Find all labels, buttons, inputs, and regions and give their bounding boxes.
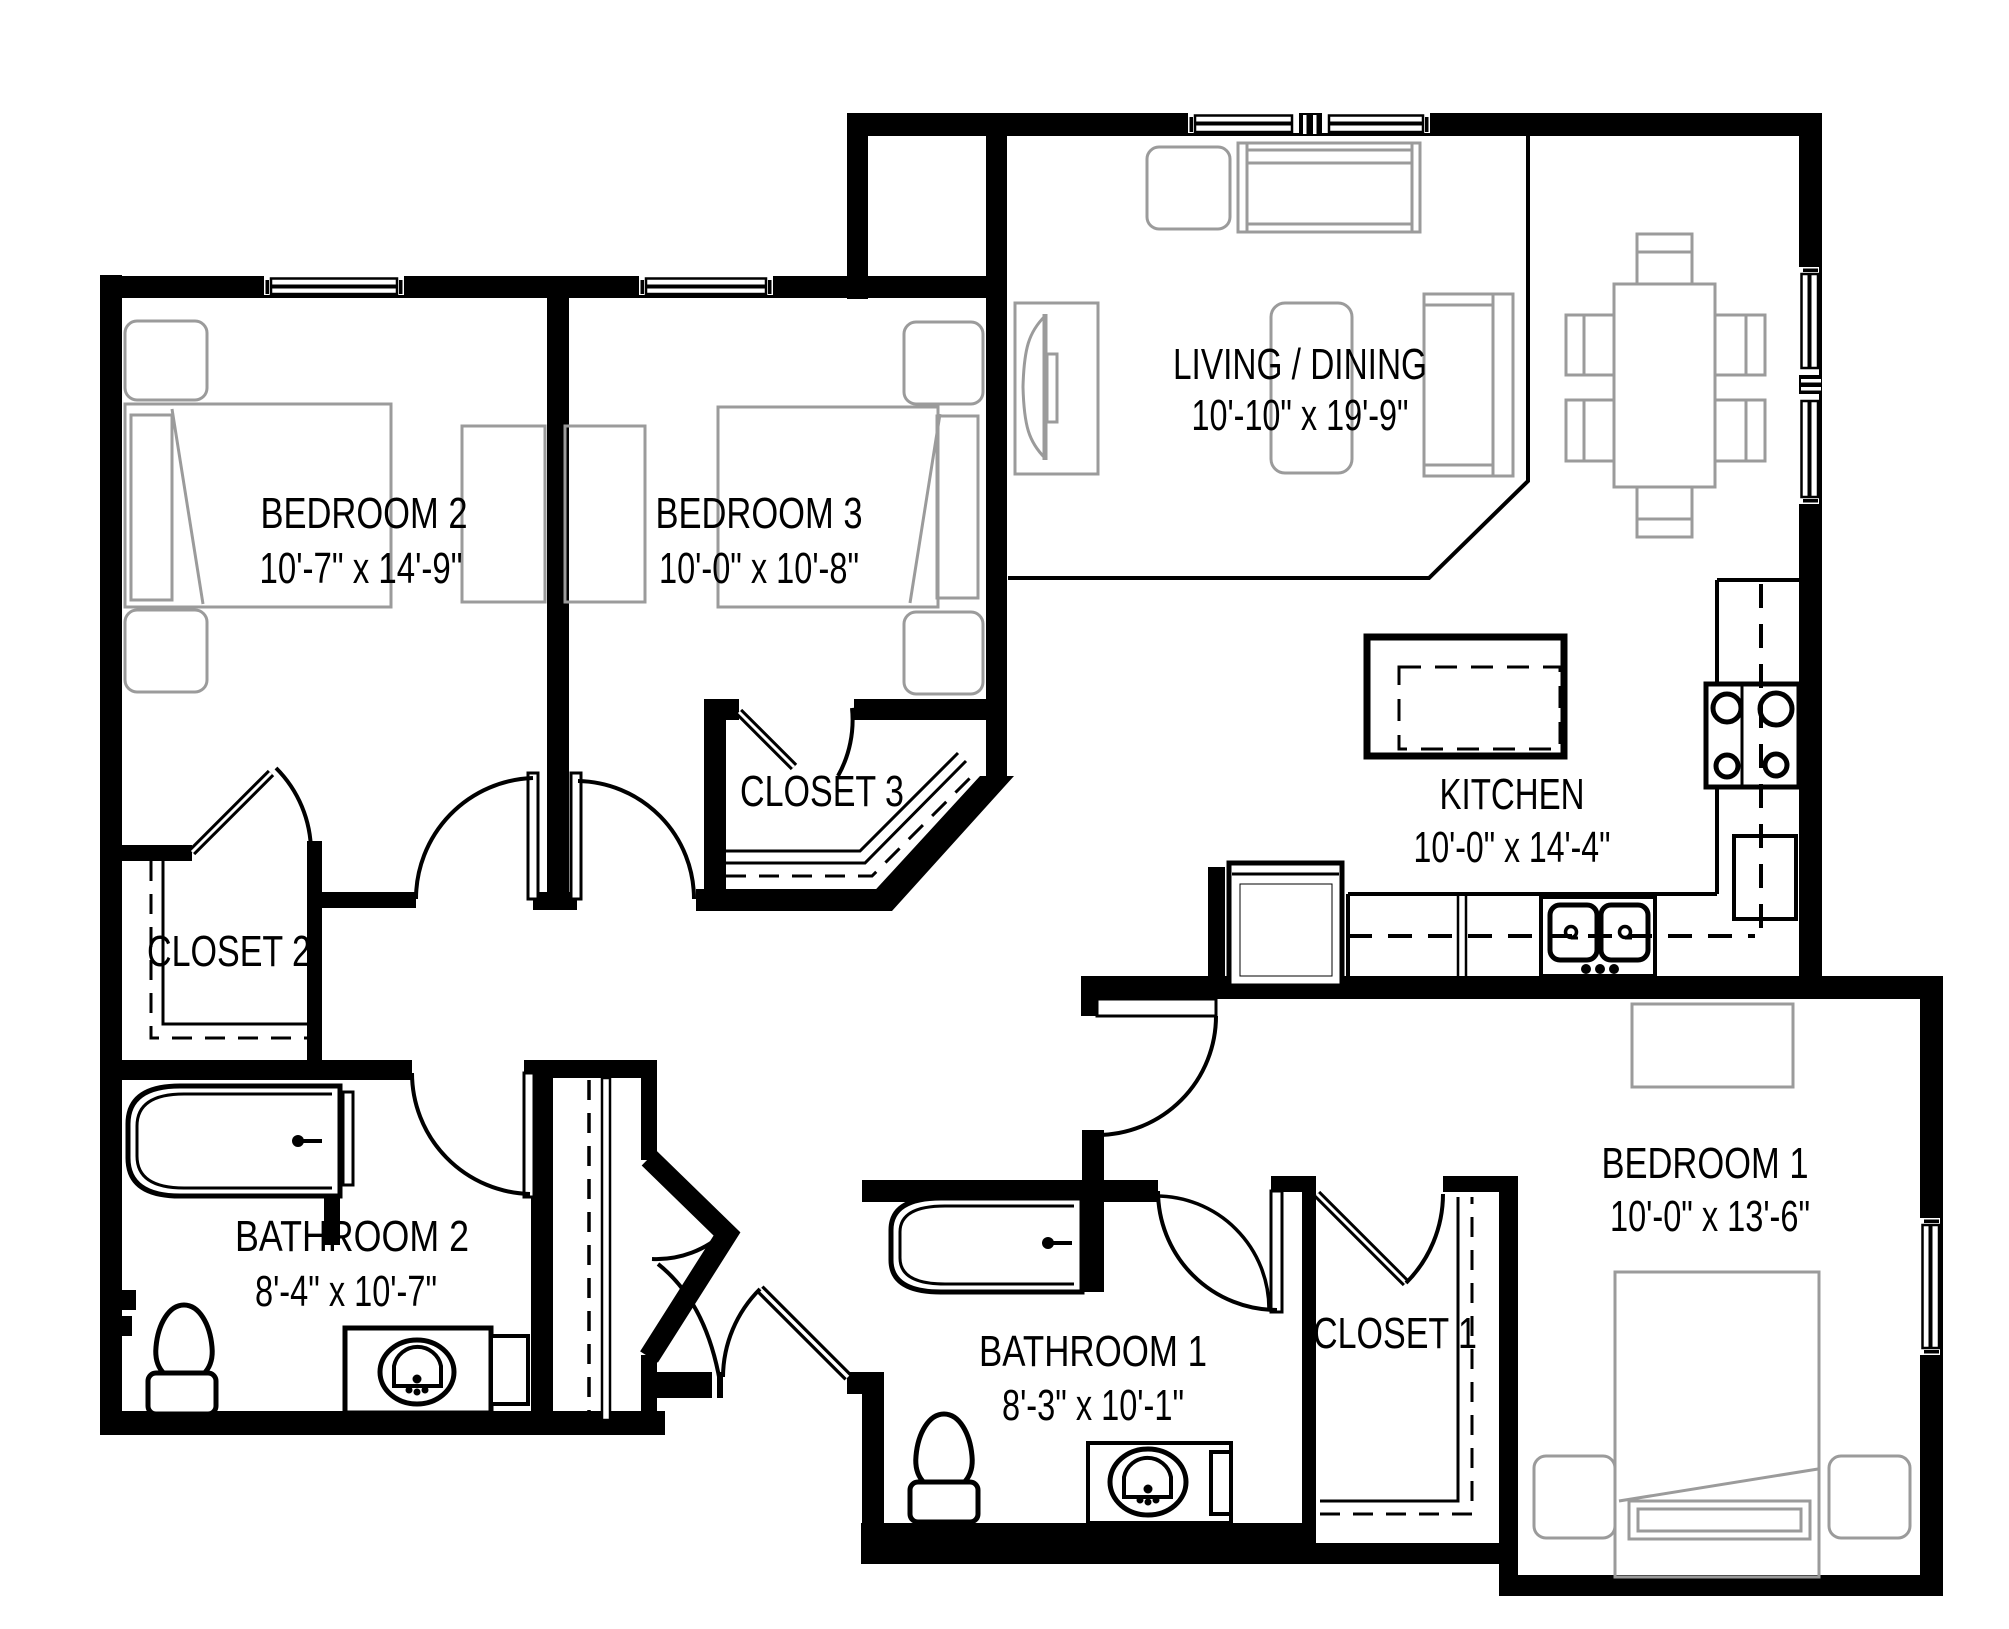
svg-text:8'-3" x 10'-1": 8'-3" x 10'-1"	[1002, 1381, 1184, 1430]
svg-text:10'-0" x 10'-8": 10'-0" x 10'-8"	[659, 544, 859, 593]
svg-text:CLOSET 3: CLOSET 3	[740, 767, 904, 816]
svg-text:10'-7" x 14'-9": 10'-7" x 14'-9"	[260, 544, 463, 593]
svg-text:BEDROOM 1: BEDROOM 1	[1602, 1139, 1809, 1188]
svg-text:10'-0" x 13'-6": 10'-0" x 13'-6"	[1610, 1192, 1810, 1241]
svg-text:BEDROOM 3: BEDROOM 3	[656, 489, 863, 538]
svg-text:CLOSET 1: CLOSET 1	[1313, 1309, 1477, 1358]
svg-text:10'-10" x 19'-9": 10'-10" x 19'-9"	[1192, 391, 1409, 440]
svg-text:CLOSET 2: CLOSET 2	[147, 927, 311, 976]
svg-text:10'-0" x 14'-4": 10'-0" x 14'-4"	[1414, 823, 1611, 872]
svg-text:BEDROOM 2: BEDROOM 2	[261, 489, 468, 538]
svg-text:BATHROOM 2: BATHROOM 2	[235, 1212, 469, 1261]
svg-text:BATHROOM 1: BATHROOM 1	[979, 1327, 1207, 1376]
svg-text:8'-4" x 10'-7": 8'-4" x 10'-7"	[255, 1267, 437, 1316]
svg-text:LIVING / DINING: LIVING / DINING	[1173, 340, 1427, 389]
svg-text:KITCHEN: KITCHEN	[1440, 770, 1585, 819]
